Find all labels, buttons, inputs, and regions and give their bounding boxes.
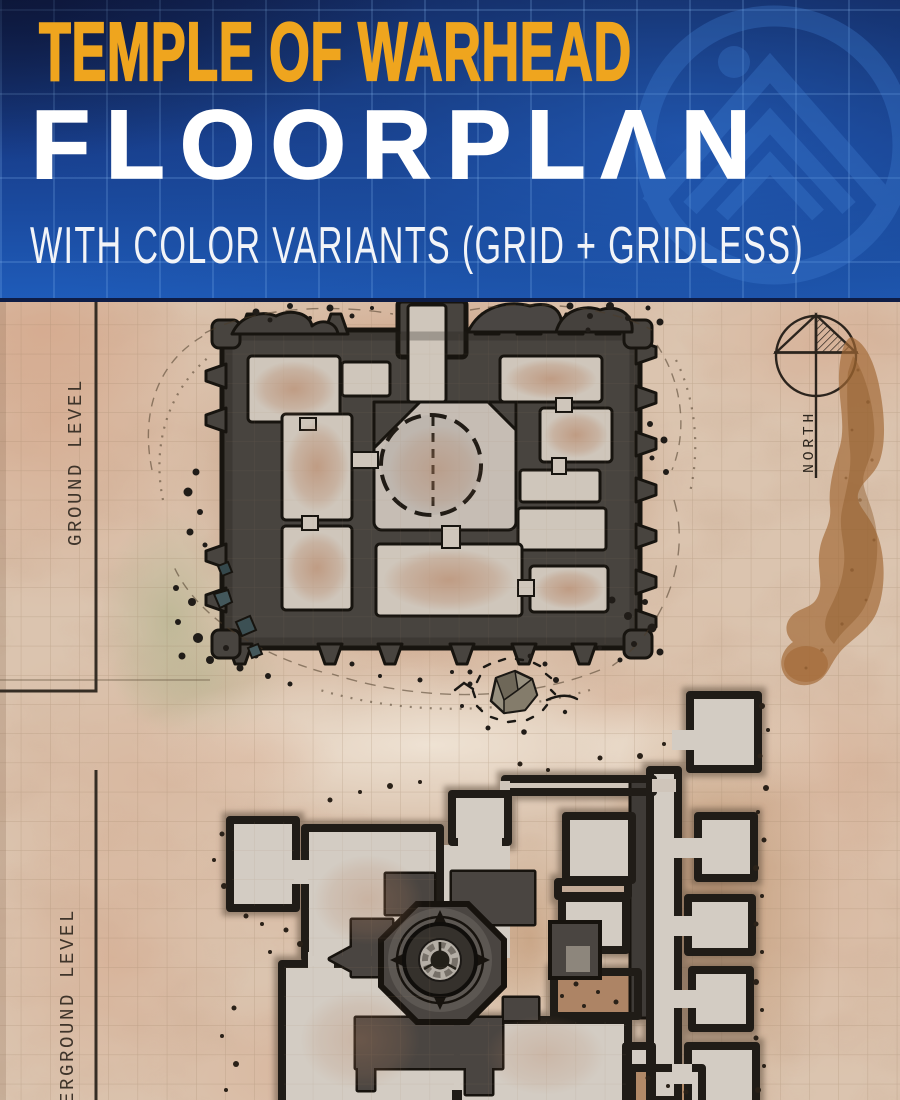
svg-text:GROUND LEVEL: GROUND LEVEL: [65, 378, 87, 546]
svg-text:UNDERGROUND LEVEL: UNDERGROUND LEVEL: [57, 908, 79, 1100]
svg-text:NORTH: NORTH: [801, 410, 818, 473]
